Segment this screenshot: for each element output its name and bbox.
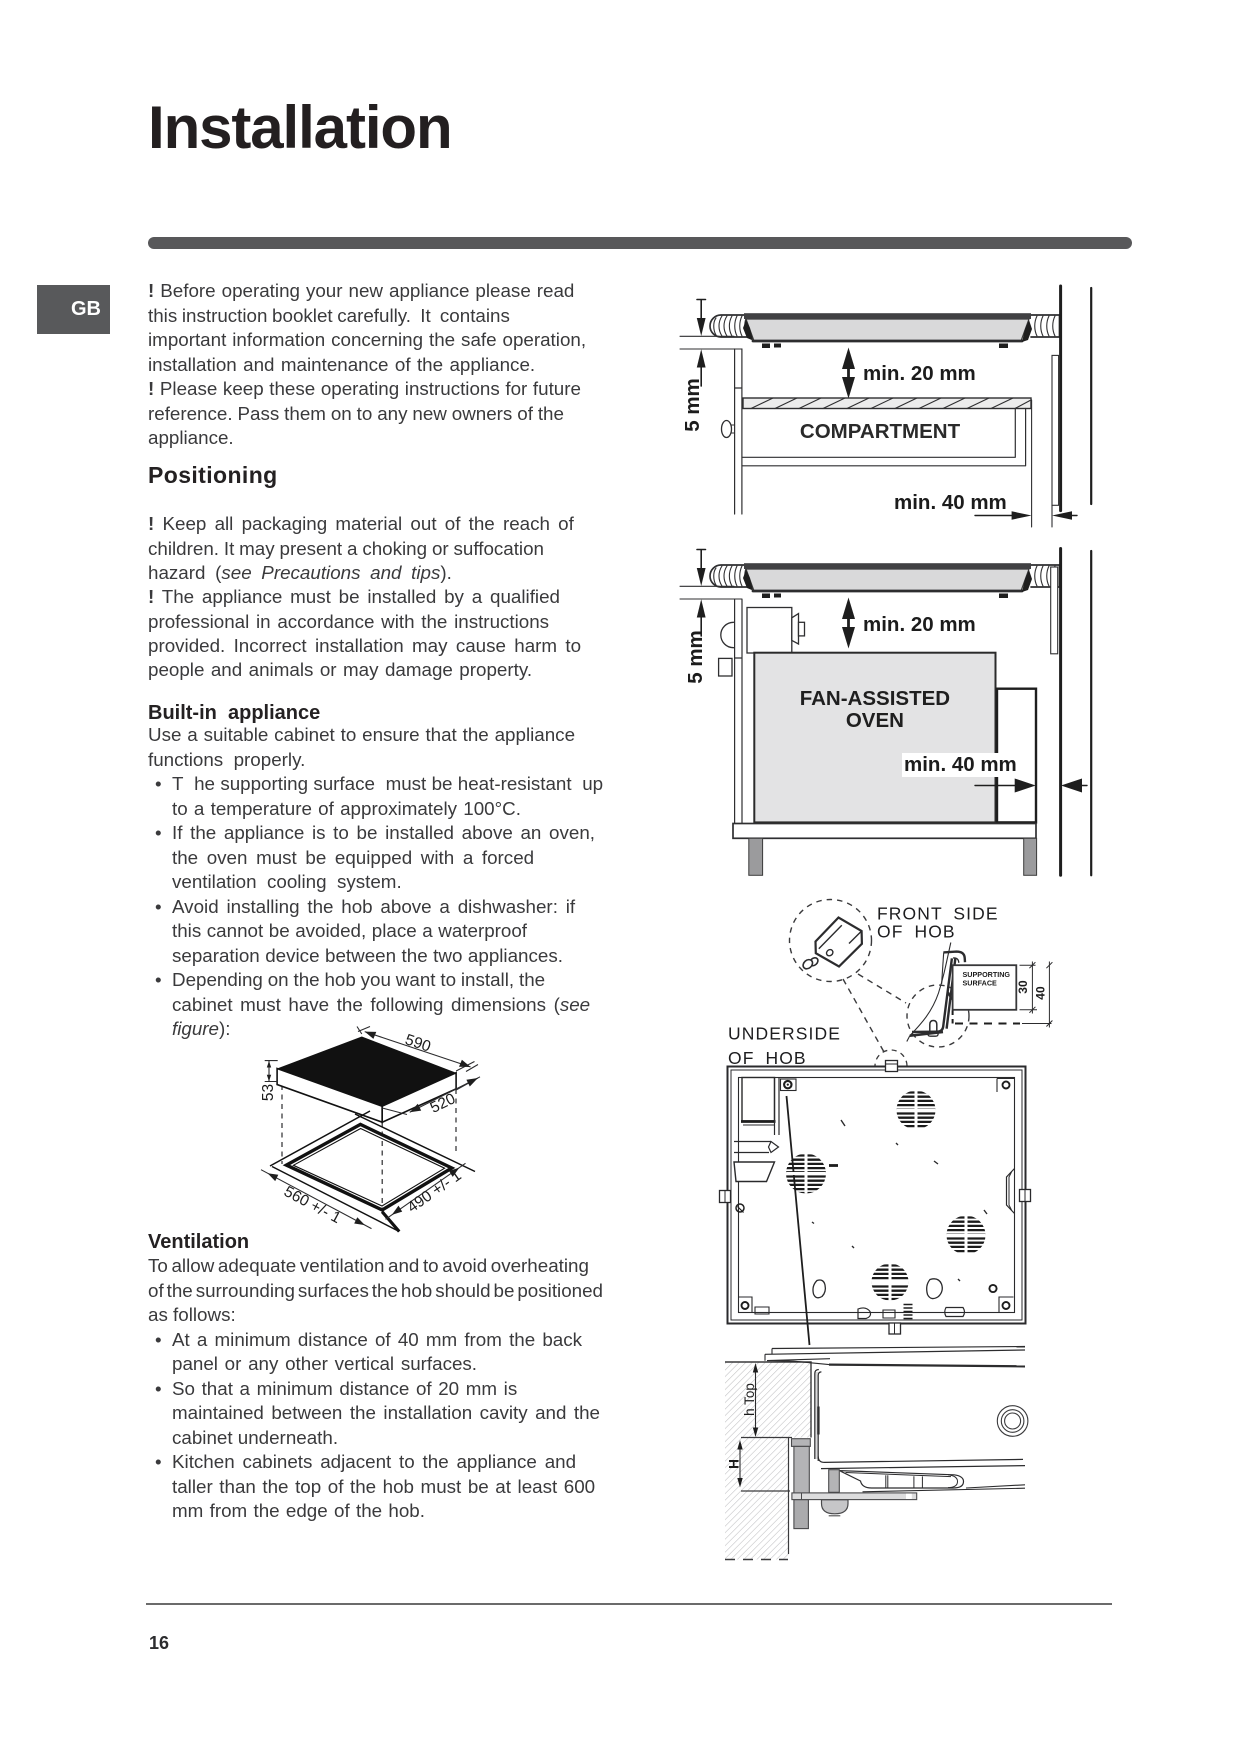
svg-text:h Top: h Top: [742, 1383, 757, 1416]
svg-text:FAN-ASSISTED: FAN-ASSISTED: [800, 687, 950, 710]
svg-text:min. 20 mm: min. 20 mm: [863, 613, 976, 636]
svg-text:5 mm: 5 mm: [681, 378, 704, 432]
svg-text:590: 590: [403, 1031, 433, 1055]
svg-text:FRONT SIDE: FRONT SIDE: [877, 904, 999, 924]
svg-text:COMPARTMENT: COMPARTMENT: [800, 420, 961, 443]
svg-text:560 +/- 1: 560 +/- 1: [281, 1183, 343, 1227]
svg-text:5 mm: 5 mm: [684, 630, 707, 684]
svg-text:H: H: [727, 1459, 742, 1469]
svg-text:OF HOB: OF HOB: [728, 1048, 807, 1068]
svg-text:40: 40: [1034, 986, 1048, 1000]
svg-text:OVEN: OVEN: [846, 709, 904, 732]
svg-text:53: 53: [260, 1084, 277, 1101]
svg-text:30: 30: [1016, 980, 1030, 994]
svg-text:UNDERSIDE: UNDERSIDE: [728, 1024, 841, 1044]
svg-text:min. 40 mm: min. 40 mm: [904, 753, 1017, 776]
svg-text:OF HOB: OF HOB: [877, 922, 956, 942]
svg-text:min. 40 mm: min. 40 mm: [894, 491, 1007, 514]
svg-text:SURFACE: SURFACE: [963, 978, 998, 987]
svg-text:min. 20 mm: min. 20 mm: [863, 362, 976, 385]
